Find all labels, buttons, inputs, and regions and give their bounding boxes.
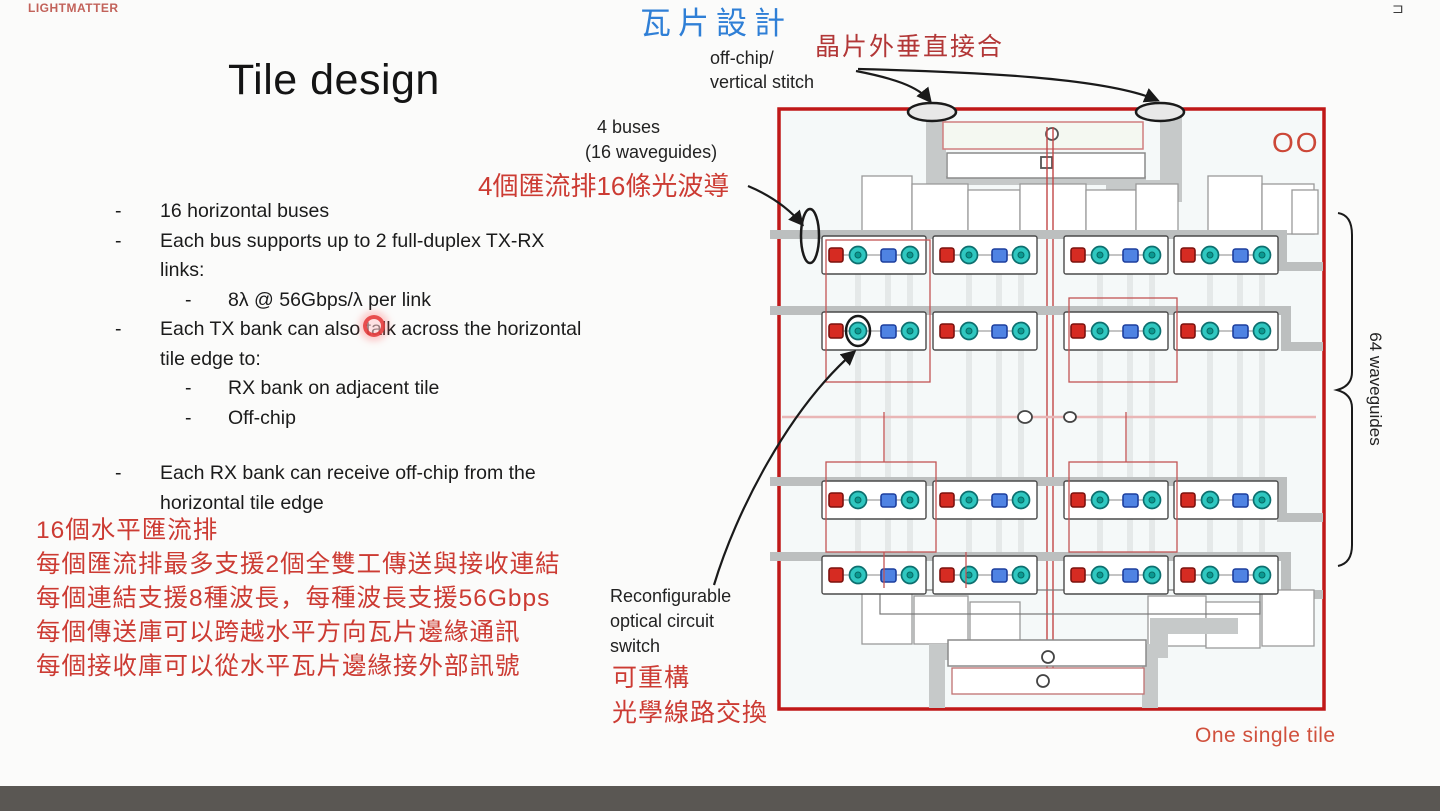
tx-component (829, 324, 843, 338)
rx-component (1233, 494, 1248, 507)
waveguides-brace (1337, 213, 1352, 566)
rx-component (992, 569, 1007, 582)
tx-component (940, 568, 954, 582)
tx-component (940, 248, 954, 262)
rx-component (992, 249, 1007, 262)
stitch-arrow-left (856, 71, 930, 101)
rx-component (992, 494, 1007, 507)
bottom-bar (0, 786, 1440, 811)
rx-component (881, 249, 896, 262)
rx-component (992, 325, 1007, 338)
tx-component (1071, 324, 1085, 338)
vertical-stitch-ellipse-right (1136, 103, 1184, 121)
waveguides-64-label: 64 waveguides (1366, 332, 1385, 445)
tx-component (1181, 324, 1195, 338)
rx-component (1233, 249, 1248, 262)
rx-component (1233, 325, 1248, 338)
rx-component (881, 569, 896, 582)
rx-component (1233, 569, 1248, 582)
tx-component (1071, 568, 1085, 582)
tx-component (940, 493, 954, 507)
tx-component (1181, 248, 1195, 262)
tx-component (829, 568, 843, 582)
rx-component (1123, 249, 1138, 262)
rx-component (881, 494, 896, 507)
rx-component (1123, 325, 1138, 338)
rx-component (881, 325, 896, 338)
tx-component (1181, 493, 1195, 507)
tile-corner-mark: OO (1272, 127, 1320, 158)
rx-component (1123, 494, 1138, 507)
tx-component (1071, 248, 1085, 262)
tx-component (829, 248, 843, 262)
vertical-stitch-ellipse-left (908, 103, 956, 121)
tx-component (829, 493, 843, 507)
tx-component (1071, 493, 1085, 507)
slide: LIGHTMATTER ⊐ Tile design 瓦片設計 晶片外垂直接合 o… (0, 0, 1440, 811)
rx-component (1123, 569, 1138, 582)
tile-diagram: 64 waveguides OO (0, 0, 1440, 811)
tx-component (940, 324, 954, 338)
tx-component (1181, 568, 1195, 582)
